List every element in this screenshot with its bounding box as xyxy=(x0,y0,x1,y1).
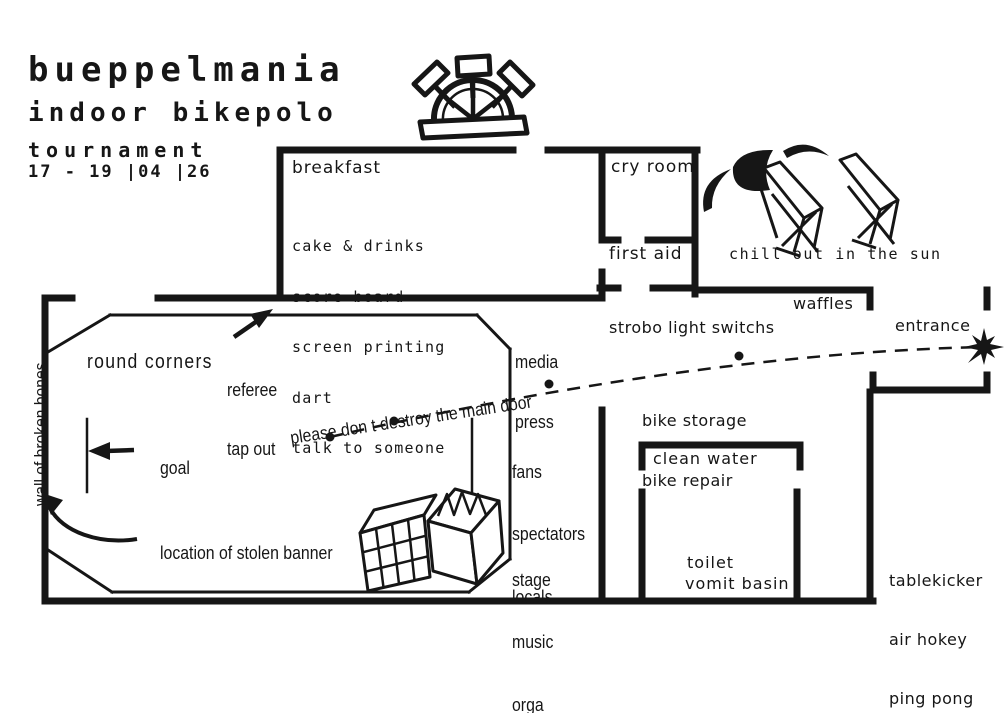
games-corner-list: tablekicker air hokey ping pong xyxy=(889,534,983,713)
room-label-first-aid: first aid xyxy=(609,245,683,264)
toilet-label: toilet xyxy=(687,554,734,572)
media-label: media xyxy=(515,352,558,372)
goal-label: goal xyxy=(137,439,194,498)
event-subtitle2: tournament xyxy=(28,139,208,161)
event-title: bueppelmania xyxy=(28,52,346,89)
orga-label: orga xyxy=(512,694,544,713)
games-item: ping pong xyxy=(889,687,983,711)
clean-water-label: clean water xyxy=(653,450,758,468)
referee-arrow xyxy=(234,309,273,337)
vomit-basin-label: vomit basin xyxy=(685,575,790,593)
bike-repair-label: bike repair xyxy=(642,468,747,493)
event-subtitle: indoor bikepolo xyxy=(28,99,338,128)
stage-area-label: stage music orga xyxy=(512,529,559,713)
bikepolo-logo-icon xyxy=(414,56,533,138)
stage-label: stage xyxy=(512,569,551,591)
crates-icon xyxy=(360,489,503,591)
music-label: music xyxy=(512,631,553,653)
games-item: air hokey xyxy=(889,628,983,652)
room-label-waffles: waffles xyxy=(793,295,853,313)
goal-arrow xyxy=(88,442,134,460)
strobo-switches-label: strobo light switchs xyxy=(609,319,775,337)
event-dates: 17 - 19 |04 |26 xyxy=(28,163,212,182)
beach-umbrella-icon xyxy=(703,145,829,238)
games-item: tablekicker xyxy=(889,569,983,593)
round-corners-label: round corners xyxy=(56,328,230,395)
bike-storage-label: bike storage xyxy=(642,408,747,433)
stolen-banner-label: location of stolen banner xyxy=(137,524,356,583)
room-label-breakfast: breakfast xyxy=(292,159,381,178)
activity-item: screen printing xyxy=(292,339,445,357)
outdoor-area-label: chill out in the sun xyxy=(729,246,942,263)
deck-chairs-icon xyxy=(764,154,898,256)
door-note-label: please don t destroy the main door xyxy=(266,409,566,468)
activity-item: cake & drinks xyxy=(292,238,445,256)
activity-item: score board xyxy=(292,289,445,307)
activity-item: dart xyxy=(292,390,445,408)
chill-out-icon xyxy=(703,145,898,256)
room-label-cry-room: cry room xyxy=(611,158,695,177)
entrance-label: entrance xyxy=(895,317,970,335)
floorplan-poster: bueppelmania indoor bikepolo tournament … xyxy=(0,0,1008,713)
